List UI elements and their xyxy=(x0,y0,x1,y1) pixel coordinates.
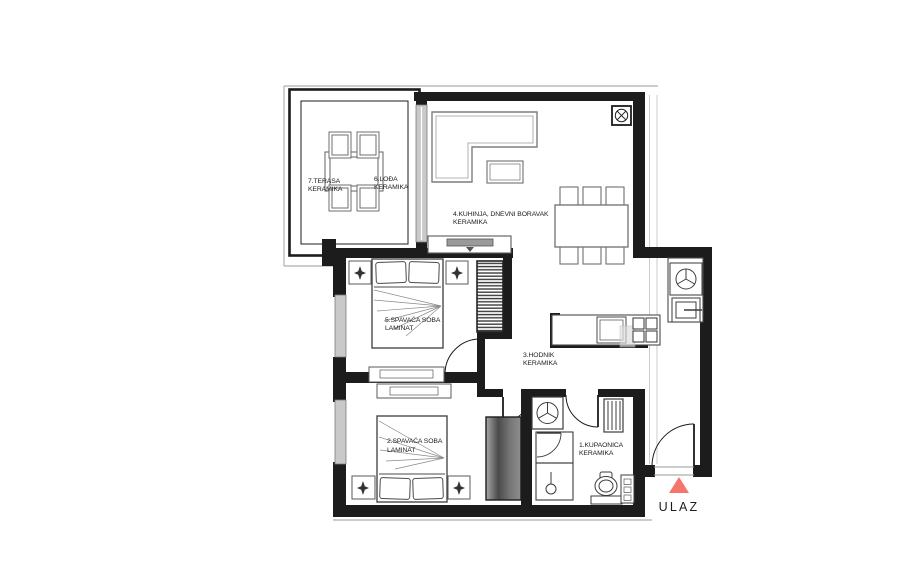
shower-icon xyxy=(536,432,573,500)
svg-text:KERAMIKA: KERAMIKA xyxy=(579,450,614,457)
tv-stand xyxy=(428,236,511,253)
floor-plan-drawing: 7.TERASA KERAMIKA 6.LOĐA KERAMIKA 4.KUHI… xyxy=(0,0,918,562)
door-bedroom5 xyxy=(445,339,480,374)
bed-double xyxy=(372,259,443,348)
dresser xyxy=(377,384,451,398)
dining-table-set xyxy=(555,187,628,264)
room-label-kupaonica: 1.KUPAONICA KERAMIKA xyxy=(579,442,624,457)
vent-symbol-icon xyxy=(612,106,631,125)
bed-double xyxy=(377,416,447,502)
coffee-table xyxy=(487,161,523,183)
svg-text:6.LOĐA: 6.LOĐA xyxy=(374,176,398,183)
toilet-icon xyxy=(591,472,622,504)
room-label-hodnik: 3.HODNIK KERAMIKA xyxy=(523,352,558,367)
room-label-terasa: 7.TERASA KERAMIKA xyxy=(308,178,343,193)
room-label-kuhinja-dnevni-boravak: 4.KUHINJA, DNEVNI BORAVAK KERAMIKA xyxy=(453,211,549,226)
entrance-marker: ULAZ xyxy=(659,477,700,514)
floor-plan-canvas: 7.TERASA KERAMIKA 6.LOĐA KERAMIKA 4.KUHI… xyxy=(0,0,918,562)
svg-text:7.TERASA: 7.TERASA xyxy=(308,178,341,185)
door-entrance xyxy=(652,424,694,466)
washing-machine-icon xyxy=(532,397,563,429)
svg-text:LAMINAT: LAMINAT xyxy=(385,325,413,332)
wardrobe-dark xyxy=(486,417,521,500)
svg-text:4.KUHINJA, DNEVNI BORAVAK: 4.KUHINJA, DNEVNI BORAVAK xyxy=(453,211,549,218)
window-bedroom2 xyxy=(335,400,346,464)
boiler-icon xyxy=(621,475,634,503)
entrance-label: ULAZ xyxy=(659,500,700,514)
svg-text:LAMINAT: LAMINAT xyxy=(387,447,415,454)
svg-text:5.SPAVAĆA SOBA: 5.SPAVAĆA SOBA xyxy=(385,315,441,324)
room-label-lodja: 6.LOĐA KERAMIKA xyxy=(374,176,409,191)
svg-text:KERAMIKA: KERAMIKA xyxy=(374,184,409,191)
svg-text:KERAMIKA: KERAMIKA xyxy=(308,186,343,193)
svg-text:KERAMIKA: KERAMIKA xyxy=(523,360,558,367)
svg-text:2.SPAVAĆA SOBA: 2.SPAVAĆA SOBA xyxy=(387,436,443,445)
floor-drain-icon xyxy=(546,472,556,494)
entry-threshold xyxy=(654,467,694,475)
svg-text:1.KUPAONICA: 1.KUPAONICA xyxy=(579,442,624,449)
wardrobe-hatched xyxy=(477,261,503,332)
window-bedroom5 xyxy=(335,295,346,357)
entrance-arrow-icon xyxy=(669,477,689,493)
svg-text:3.HODNIK: 3.HODNIK xyxy=(523,352,555,359)
dresser xyxy=(369,367,444,382)
door-bathroom xyxy=(566,395,598,427)
radiator-icon xyxy=(604,399,623,432)
svg-text:KERAMIKA: KERAMIKA xyxy=(453,219,488,226)
